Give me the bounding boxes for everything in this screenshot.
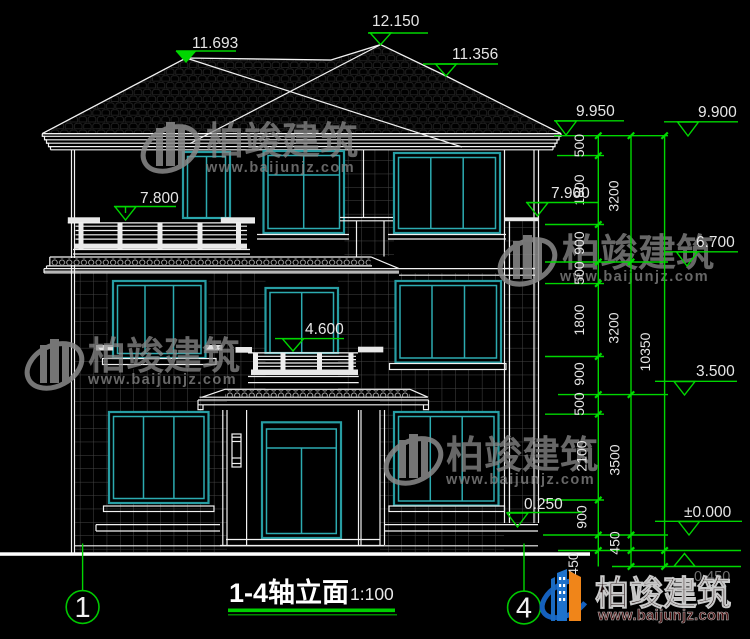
svg-text:500: 500 bbox=[571, 392, 587, 416]
svg-text:www.baijunjz.com: www.baijunjz.com bbox=[597, 608, 730, 624]
svg-text:4.600: 4.600 bbox=[305, 321, 344, 338]
svg-text:900: 900 bbox=[574, 505, 590, 529]
svg-text:3500: 3500 bbox=[607, 444, 623, 475]
svg-text:6.700: 6.700 bbox=[696, 234, 735, 251]
svg-text:2100: 2100 bbox=[574, 440, 590, 471]
svg-text:3.500: 3.500 bbox=[696, 363, 735, 380]
svg-text:0.250: 0.250 bbox=[524, 496, 563, 513]
svg-text:9.950: 9.950 bbox=[576, 103, 615, 120]
svg-text:9.900: 9.900 bbox=[698, 104, 737, 121]
svg-text:7.900: 7.900 bbox=[551, 185, 590, 202]
svg-text:柏竣建筑: 柏竣建筑 bbox=[206, 121, 358, 163]
svg-text:1: 1 bbox=[75, 592, 91, 624]
svg-text:7.800: 7.800 bbox=[140, 190, 179, 207]
svg-text:11.356: 11.356 bbox=[452, 46, 498, 63]
svg-text:1:100: 1:100 bbox=[350, 584, 394, 604]
svg-text:500: 500 bbox=[571, 134, 587, 158]
svg-text:11.693: 11.693 bbox=[192, 35, 238, 52]
svg-text:900: 900 bbox=[571, 231, 587, 255]
svg-text:www.baijunjz.com: www.baijunjz.com bbox=[87, 372, 237, 388]
svg-text:www.baijunjz.com: www.baijunjz.com bbox=[445, 472, 595, 488]
svg-text:3200: 3200 bbox=[606, 180, 622, 211]
svg-text:12.150: 12.150 bbox=[372, 13, 420, 30]
svg-text:±0.000: ±0.000 bbox=[684, 504, 732, 521]
svg-text:450: 450 bbox=[607, 531, 623, 555]
svg-text:900: 900 bbox=[571, 362, 587, 386]
svg-text:450: 450 bbox=[565, 552, 581, 576]
svg-text:4: 4 bbox=[516, 593, 532, 625]
svg-text:www.baijunjz.com: www.baijunjz.com bbox=[205, 160, 355, 176]
svg-text:3200: 3200 bbox=[606, 312, 622, 343]
svg-text:1-4轴立面: 1-4轴立面 bbox=[229, 577, 349, 608]
svg-text:1800: 1800 bbox=[571, 304, 587, 335]
svg-text:10350: 10350 bbox=[637, 332, 653, 371]
svg-text:500: 500 bbox=[571, 261, 587, 285]
